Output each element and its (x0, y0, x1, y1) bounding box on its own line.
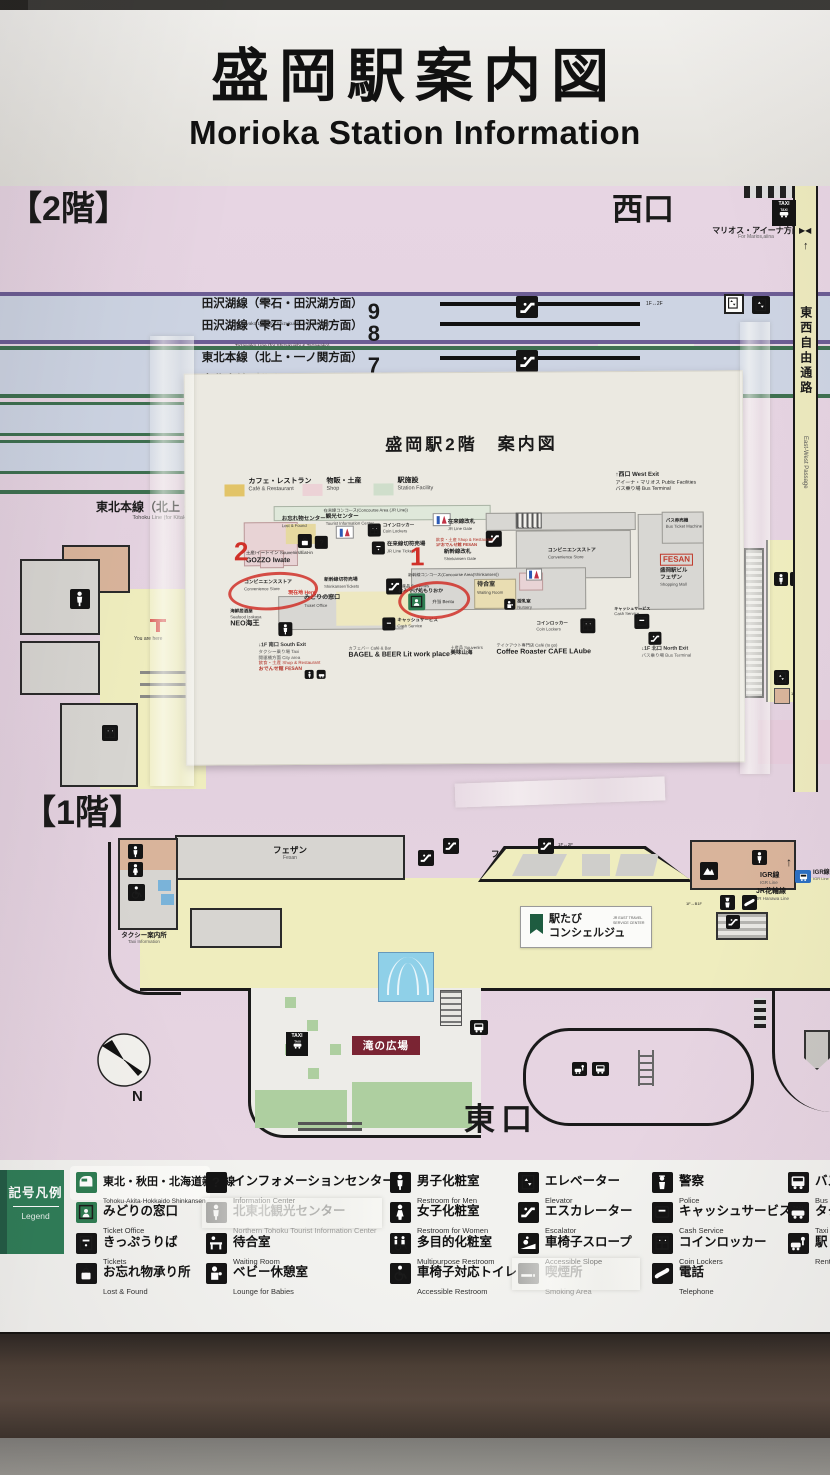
paper-title: 盛岡駅2階 案内図 (385, 434, 558, 455)
legend-jp: 待合室 (233, 1235, 271, 1249)
map-block-blue (158, 880, 171, 891)
legend-jp: 多目的化粧室 (417, 1235, 492, 1249)
paper-legend-swatch-shop (302, 484, 322, 496)
conv2-en: Convenience Store (548, 554, 596, 560)
floor-ground (0, 1438, 830, 1475)
tourist-label: 観光センターTourist Information Center (326, 514, 374, 527)
map-block-blue (161, 894, 174, 905)
map-block-brown (774, 688, 790, 704)
tickets-icon (76, 1233, 97, 1254)
legend-item: 電話Telephone (652, 1263, 714, 1299)
legend-jp: エスカレーター (545, 1204, 633, 1218)
escalator-icon (443, 838, 459, 854)
cash-service-icon (652, 1202, 673, 1223)
paper-west-note: ↑西口 West Exit アイーナ・マリオス Public Facilitie… (615, 472, 696, 493)
restroom-icon (526, 569, 542, 581)
floor2-label: 【2階】 (8, 190, 129, 229)
floor2-section: 【2階】 西口 マリオス・アイーナ方面 For Marios,aiina 田沢湖… (0, 186, 830, 792)
hanawa-en: JR Hanawa Line (756, 896, 789, 901)
ekitabi-line2: コンシェルジュ (549, 927, 625, 940)
neo-name: NEO海王 (230, 620, 261, 629)
nu-en: Nursery (517, 604, 532, 610)
igr-jp: IGR線 (760, 872, 779, 880)
north-2: バス乗り場 Bus Terminal (642, 652, 692, 658)
legend-jp: インフォメーションセンター (233, 1174, 395, 1188)
header-section: 盛岡駅案内図 Morioka Station Information (0, 10, 830, 186)
crosswalk (744, 186, 794, 198)
lf-en: Lost & Found (282, 523, 326, 529)
shinkansen-gate-icon (516, 513, 542, 529)
escalator-icon (538, 838, 554, 854)
tape-strip-left (150, 336, 194, 786)
elevator-icon (752, 296, 770, 314)
legend-box: 記号凡例 Legend (0, 1170, 64, 1254)
facility-icon (70, 589, 90, 609)
lift-note: 1F↔2F (558, 842, 573, 847)
waiting-room-label: 待合室Waiting Room (477, 582, 503, 595)
cb-name: BAGEL & BEER Lit work place (349, 651, 450, 661)
planter (308, 1068, 319, 1079)
tc-en: Tourist Information Center (326, 521, 374, 527)
nursery-label: 授乳室Nursery (517, 599, 532, 610)
cash-service-icon (382, 617, 395, 630)
legend-jp: コインロッカー (679, 1235, 767, 1249)
accessible-slope-icon (518, 1233, 539, 1254)
legend-jp: 電話 (679, 1265, 704, 1279)
womens-restroom-icon (128, 862, 143, 877)
compass-north-label: N (132, 1088, 143, 1105)
tickets-icon (372, 541, 385, 554)
womens-restroom-icon (390, 1202, 411, 1223)
legend-item-clipped: 駅レRent- (788, 1233, 830, 1269)
taxi-info-en: Taxi Information (104, 939, 184, 944)
hanawa-line-label: JR花輪線JR Hanawa Line (756, 888, 789, 901)
elevator-icon (724, 294, 744, 314)
fesan-logo: FESAN (660, 554, 693, 567)
accessible-icon (128, 884, 145, 901)
telephone-icon (652, 1263, 673, 1284)
rent-a-car-icon (788, 1233, 809, 1254)
elevator-icon (774, 670, 789, 685)
ca-en: Cash Service (397, 623, 438, 629)
legend-box-rule (13, 1206, 59, 1207)
legend-jp: 男子化粧室 (417, 1174, 480, 1188)
platform8-jp: 田沢湖線（雫石・田沢湖方面） (202, 320, 363, 332)
escalator-icon (518, 1202, 539, 1223)
multipurpose-restroom-icon (390, 1233, 411, 1254)
legend-en: Lounge for Babies (233, 1287, 294, 1296)
fesan-building-label: 盛岡駅ビルフェザンShopping Mall (660, 568, 688, 588)
taxi-info-label: タクシー案内所Taxi Information (104, 932, 184, 945)
passage-en: East-West Passage (801, 436, 808, 489)
st-en: ShinkansenTickets (324, 584, 359, 590)
taki-text: 滝の広場 (363, 1038, 409, 1053)
shinkansen-concourse-label: 新幹線コンコース(Concourse Area(Shinkansen)) (408, 572, 499, 578)
mountain-icon (700, 862, 718, 880)
platform-edge (440, 356, 640, 360)
compass-icon (96, 1032, 152, 1088)
accessible-restroom-icon (390, 1263, 411, 1284)
seafood-label: 海鮮居酒屋Seafood IzakayaNEO海王 (230, 608, 261, 629)
escalator-icon (516, 296, 538, 318)
legend-jp: 車椅子スロープ (545, 1235, 632, 1249)
mens-restroom-icon (128, 844, 143, 859)
flag-icon (530, 914, 543, 934)
coin-lockers-label: コインロッカーCoin Lockers (383, 522, 415, 533)
izakaya-icon (278, 622, 292, 636)
legend-jp: きっぷうりば (103, 1235, 178, 1249)
police-icon (720, 895, 735, 910)
photo-top-edge (0, 0, 830, 10)
ekitabi-en: JR EAST TRAVEL SERVICE CENTER (613, 916, 649, 926)
paper-legend-swatch-station (373, 483, 393, 495)
bus-icon (788, 1172, 809, 1193)
information-icon (206, 1172, 227, 1193)
shop-note-label: 飲食・土産 Shop & Restaurant1Fおでんせ館 FESAN (436, 537, 494, 548)
elevator-icon (518, 1172, 539, 1193)
convenience-label-2: コンビニエンスストアConvenience Store (548, 548, 596, 560)
legend-box-jp: 記号凡例 (7, 1186, 64, 1200)
tape-cover (512, 1258, 640, 1290)
paper-legend-shop: 物販・土産 Shop (326, 478, 361, 493)
legend-station-en: Station Facility (397, 485, 433, 492)
platform8-number: 8 (368, 324, 380, 344)
sg-en: Shinkansen Gate (444, 556, 476, 562)
car-icon (572, 1062, 587, 1076)
west-note-3: バス乗り場 Bus Terminal (616, 486, 697, 493)
bench (298, 1128, 362, 1131)
lost-and-found-icon (76, 1263, 97, 1284)
escalator-icon (418, 850, 434, 866)
up-arrow: ↑ (803, 240, 809, 253)
stairs-block (716, 912, 768, 940)
jr-gate-label: 在来線改札JR Line Gate (448, 519, 476, 532)
annotation-number-2: 2 (234, 538, 249, 564)
station-sign-photo: 盛岡駅案内図 Morioka Station Information 【2階】 … (0, 0, 830, 1475)
restroom-icon (752, 850, 767, 865)
ekitabi-line1: 駅たび (549, 913, 582, 926)
legend-jp: エレベーター (545, 1174, 620, 1188)
legend-section: 記号凡例 Legend 東北・秋田・北海道新幹線Tohoku·Akita·Hok… (0, 1160, 830, 1332)
crosswalk (754, 998, 766, 1028)
cash-label-right: キャッシュサービスCash Service (614, 606, 650, 617)
passage-jp: 東西自由通路 (798, 306, 812, 396)
tourist-info-icon (315, 536, 328, 549)
wr-jp: 待合室 (477, 582, 503, 590)
annotation-number-1: 1 (410, 543, 425, 569)
igr-line-label-right: IGR線IGR Line (813, 870, 830, 881)
ekitabi-sign: 駅たび コンシェルジュ JR EAST TRAVEL SERVICE CENTE… (520, 906, 652, 948)
up-arrow: ↑ (786, 856, 792, 870)
taxi-info-jp: タクシー案内所 (104, 932, 184, 939)
bt-en: Bus Ticket Machine (666, 523, 704, 529)
legend-item: ベビー休憩室Lounge for Babies (206, 1263, 308, 1299)
igr-en: IGR Line (760, 880, 779, 885)
shinkansen-gate-label: 新幹線改札Shinkansen Gate (444, 549, 476, 562)
platform-edge (440, 322, 640, 326)
baby-lounge-icon (206, 1263, 227, 1284)
legend-item: 車椅子対応トイレAccessible Restroom (390, 1263, 517, 1299)
waiting-room-icon (206, 1233, 227, 1254)
planter (330, 1044, 341, 1055)
lift-note: 1F↔2F (646, 302, 663, 308)
legend-en: Telephone (679, 1287, 714, 1296)
mens-restroom-icon (390, 1172, 411, 1193)
wr-en: Waiting Room (477, 590, 503, 596)
taped-paper-map: 盛岡駅2階 案内図 カフェ・レストラン Café & Restaurant 物販… (184, 370, 745, 765)
fesan-a-en: Fesan (250, 856, 330, 862)
taki-plaza-label: 滝の広場 (352, 1036, 420, 1055)
legend-shop-jp: 物販・土産 (326, 478, 361, 486)
legend-jp: ベビー休憩室 (233, 1265, 308, 1279)
legend-en: Rent- (815, 1257, 830, 1266)
escalator-icon (726, 915, 740, 929)
tape-cover (202, 1198, 382, 1228)
lift-b1f-note: 1F↔B1F (686, 902, 702, 907)
legend-jp: みどりの窓口 (103, 1204, 178, 1218)
east-exit-label: 東口 (464, 1102, 538, 1138)
shinkansen-tickets-label: 新幹線切符売場ShinkansenTickets (324, 578, 359, 590)
floor1-section: 【1階】 フェザンFesan フェザンFesan ↑ IGR線IGR Line … (0, 792, 830, 1160)
legend-item: お忘れ物承り所Lost & Found (76, 1263, 191, 1299)
fesan-label-a: フェザンFesan (250, 846, 330, 862)
escalator-icon (648, 632, 661, 645)
cafe-bar-label: カフェバー Café & BarBAGEL & BEER Lit work pl… (348, 645, 449, 660)
md-en: Ticket Office (304, 603, 340, 609)
waterfall-feature (378, 952, 434, 1002)
igr2-en: IGR Line (813, 877, 830, 882)
tape-strip-right (740, 322, 770, 774)
igr-line-label: IGR線IGR Line (760, 872, 779, 885)
door-icon: ▶◀ (799, 226, 811, 235)
legend-shop-en: Shop (326, 486, 361, 493)
map-block (60, 703, 138, 787)
coin-en: Coin Lockers (383, 528, 415, 534)
paper-legend-station: 駅施設 Station Facility (397, 477, 433, 492)
north-exit-block: ↓1F 北口 North Exit バス乗り場 Bus Terminal (641, 646, 691, 659)
floor1-label: 【1階】 (22, 794, 143, 833)
sv-name: 美味山海 (451, 650, 483, 657)
legend-jp: キャッシュサービス (679, 1204, 792, 1218)
jg-en: JR Line Gate (448, 526, 476, 532)
telephone-icon (742, 895, 757, 910)
platform9-jp: 田沢湖線（雫石・田沢湖方面） (202, 298, 363, 310)
lost-found-label: お忘れ物センターLost & Found (282, 516, 326, 529)
coin-label-right: コインロッカーCoin Lockers (536, 620, 568, 631)
legend-jp: 警察 (679, 1174, 704, 1188)
taxi-stand-icon: TAXI (286, 1032, 308, 1056)
taxi-text: TAXI (772, 202, 796, 207)
south-exit-block: ↓1F 南口 South Exit タクシー乗り場 Taxi 開運橋方面 Cit… (258, 642, 320, 673)
coin-lockers-icon (652, 1233, 673, 1254)
legend-jp: 車椅子対応トイレ (417, 1265, 517, 1279)
bus-icon (592, 1062, 609, 1076)
coin-lockers-icon (580, 618, 595, 633)
legend-jp: お忘れ物承り所 (103, 1265, 191, 1279)
north-1: ↓1F 北口 North Exit (641, 646, 691, 653)
legend-jp: バス (815, 1174, 830, 1188)
stairs (638, 1050, 654, 1086)
cafe-togo-label: テイクアウト専門店 Café (to go)Coffee Roaster CAF… (496, 642, 591, 657)
page-title: 盛岡駅案内図 (0, 44, 830, 111)
shinkansen-icon (76, 1172, 97, 1193)
platform7-jp: 東北本線（北上・一ノ関方面） (202, 352, 363, 364)
map-block (20, 641, 100, 695)
hanawa-jp: JR花輪線 (756, 888, 789, 896)
west-exit-label: 西口 (612, 192, 674, 228)
paper-legend-swatch-cafe (224, 484, 244, 496)
lawn (352, 1082, 472, 1128)
legend-jp: 女子化粧室 (417, 1204, 480, 1218)
taxi-icon (788, 1202, 809, 1223)
map-block (486, 512, 636, 531)
planter (307, 1020, 318, 1031)
gozzo-name: GOZZO Iwate (246, 556, 313, 566)
restroom-icon (336, 526, 354, 539)
coin-lockers-icon (102, 725, 118, 741)
tg-name: Coffee Roaster CAFE LAube (496, 648, 591, 658)
legend-jp: タク (815, 1204, 830, 1218)
jr-concourse-label: 在来線コンコース(Concourse Area (JR Line)) (324, 507, 408, 513)
planter (285, 997, 296, 1008)
overpass-shape (478, 846, 693, 882)
lost-and-found-icon (298, 534, 312, 548)
bus-ticket-label: バス券売機Bus Ticket Machine (666, 518, 704, 530)
taxi-text: TAXI (286, 1034, 308, 1039)
souvenir2-label: 土産品 Souvenirs美味山海 (450, 645, 482, 658)
nursery-icon (504, 599, 515, 610)
ticket-office-icon (76, 1202, 97, 1223)
page-subtitle: Morioka Station Information (0, 114, 830, 152)
platform-edge (440, 302, 640, 306)
map-block (190, 908, 282, 948)
ca2-en: Cash Service (614, 611, 650, 617)
mens-restroom-icon (774, 572, 788, 586)
legend-jp: 駅レ (815, 1235, 830, 1249)
fb3: Shopping Mall (660, 582, 688, 588)
legend-station-jp: 駅施設 (397, 477, 433, 485)
police-icon (652, 1172, 673, 1193)
gozzo-label: 土産/イートイン Souvenirs/Eat-inGOZZO Iwate (246, 550, 313, 565)
igr-train-icon (795, 870, 811, 883)
co2-en: Coin Lockers (536, 626, 568, 632)
taxi-stand-icon: TAXI (772, 200, 796, 226)
east-west-passage: 東西自由通路 East-West Passage (793, 186, 818, 792)
escalator-icon (516, 350, 538, 372)
board-bottom-frame (0, 1332, 830, 1440)
plaza-stairs (440, 990, 462, 1026)
legend-en: Accessible Restroom (417, 1287, 487, 1296)
legend-en: Lost & Found (103, 1287, 148, 1296)
sn2: 1Fおでんせ館 FESAN (436, 542, 494, 548)
bench (298, 1122, 362, 1125)
bus-stop-icon (470, 1020, 488, 1035)
legend-box-en: Legend (7, 1212, 64, 1222)
platform-band-tazawako (0, 292, 830, 344)
south-5: おでんせ館 FESAN (259, 666, 321, 673)
